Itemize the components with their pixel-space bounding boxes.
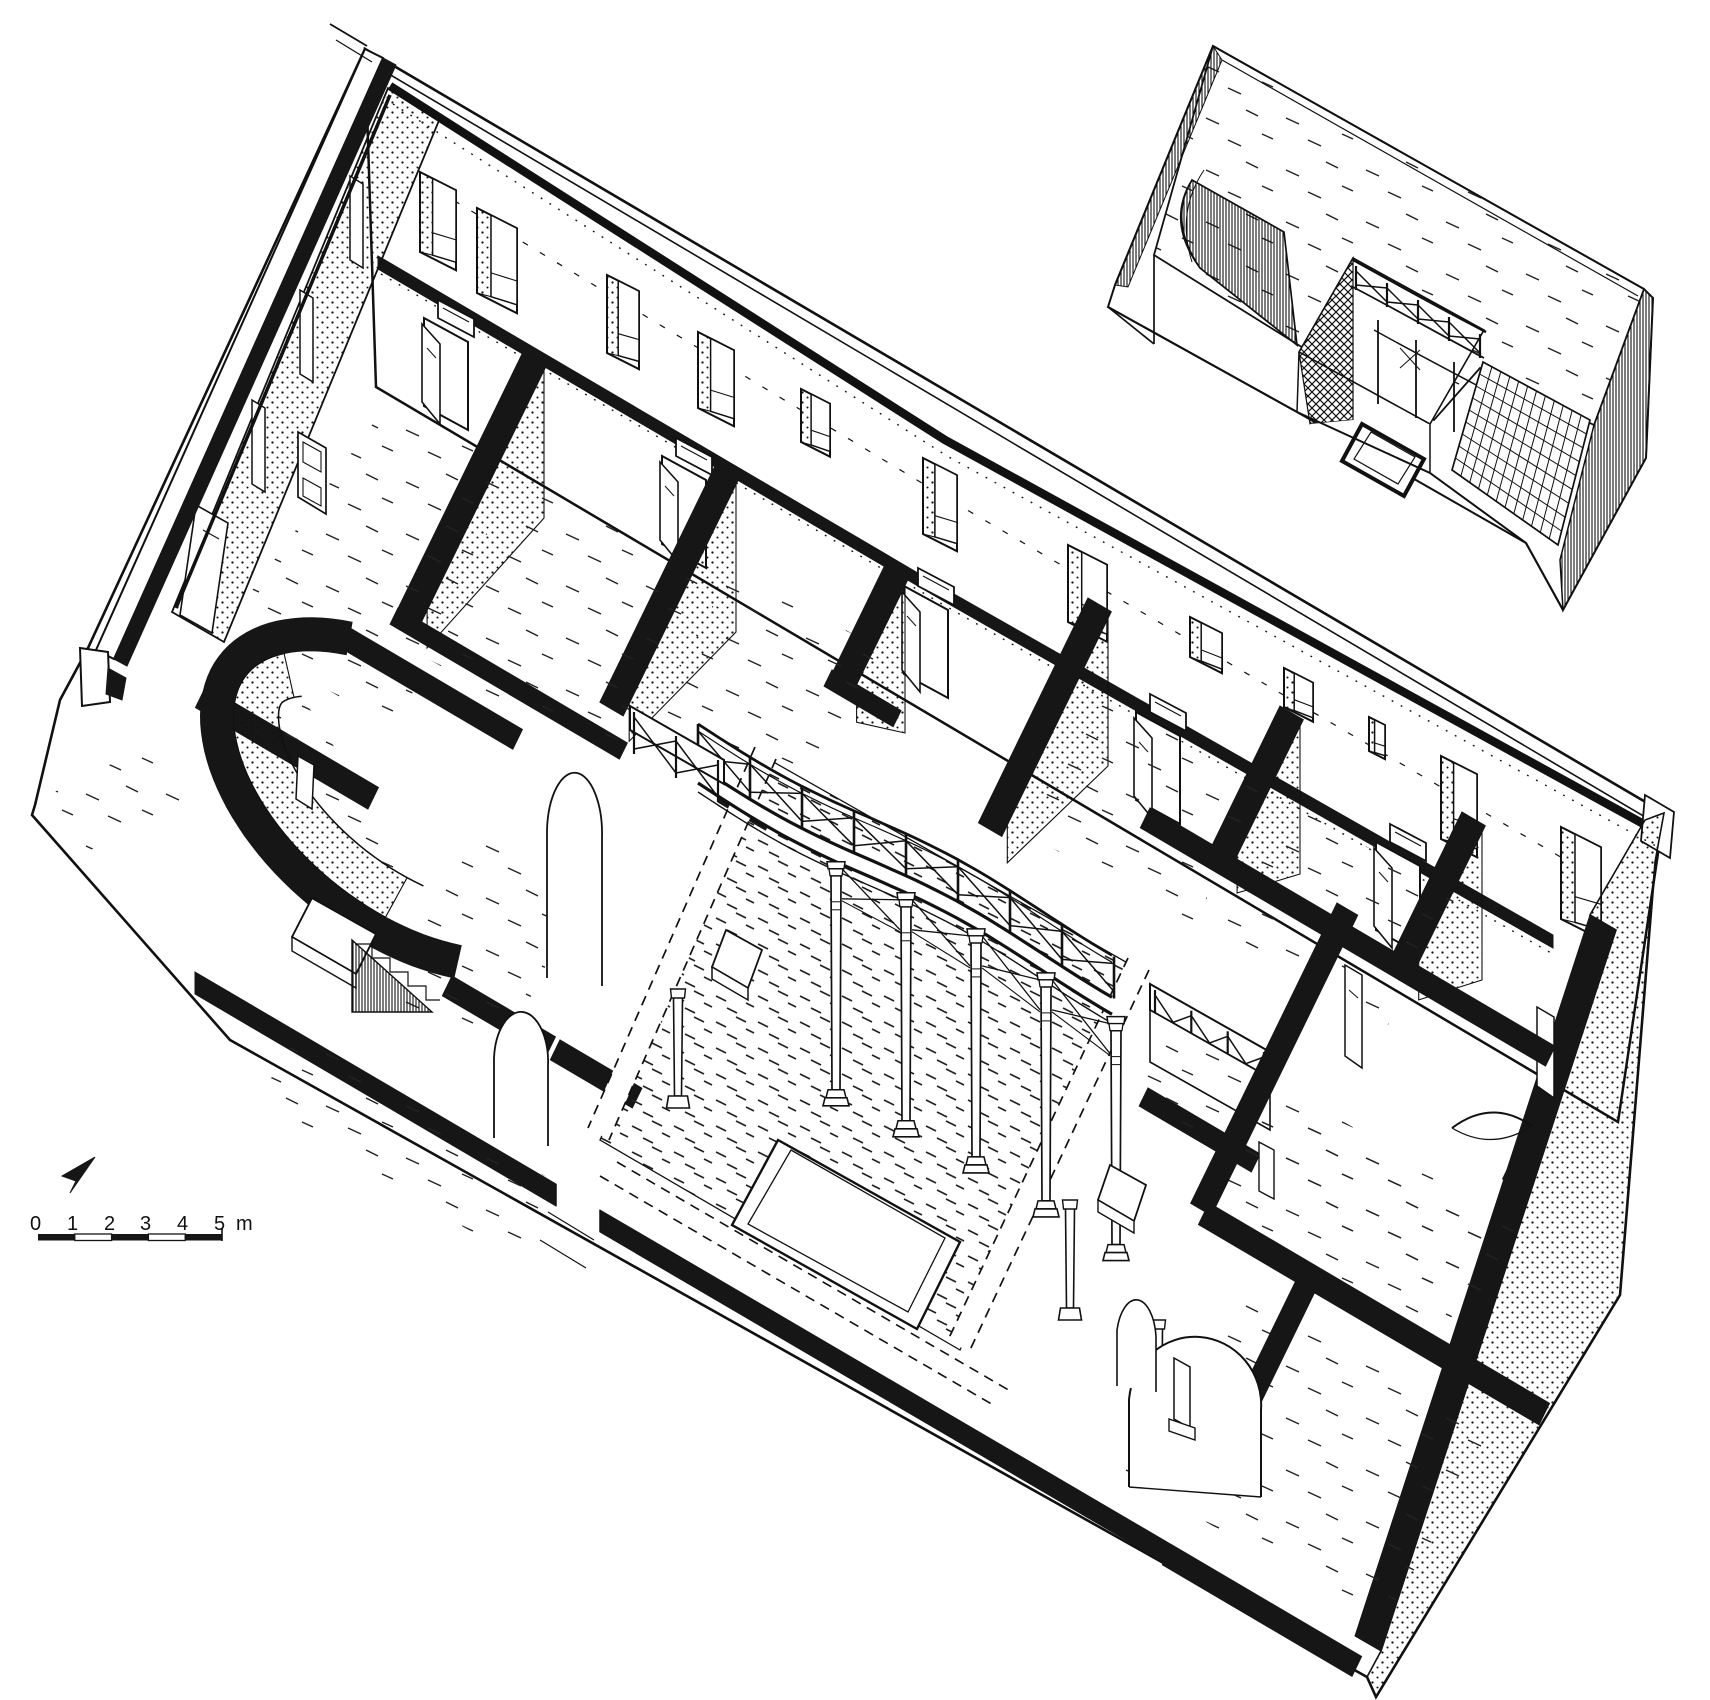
svg-text:0: 0 [30, 1213, 41, 1235]
svg-text:1: 1 [67, 1213, 78, 1235]
svg-text:2: 2 [104, 1213, 115, 1235]
svg-text:5: 5 [214, 1213, 225, 1235]
svg-text:m: m [236, 1213, 253, 1235]
svg-text:3: 3 [140, 1213, 151, 1235]
svg-text:4: 4 [177, 1213, 188, 1235]
